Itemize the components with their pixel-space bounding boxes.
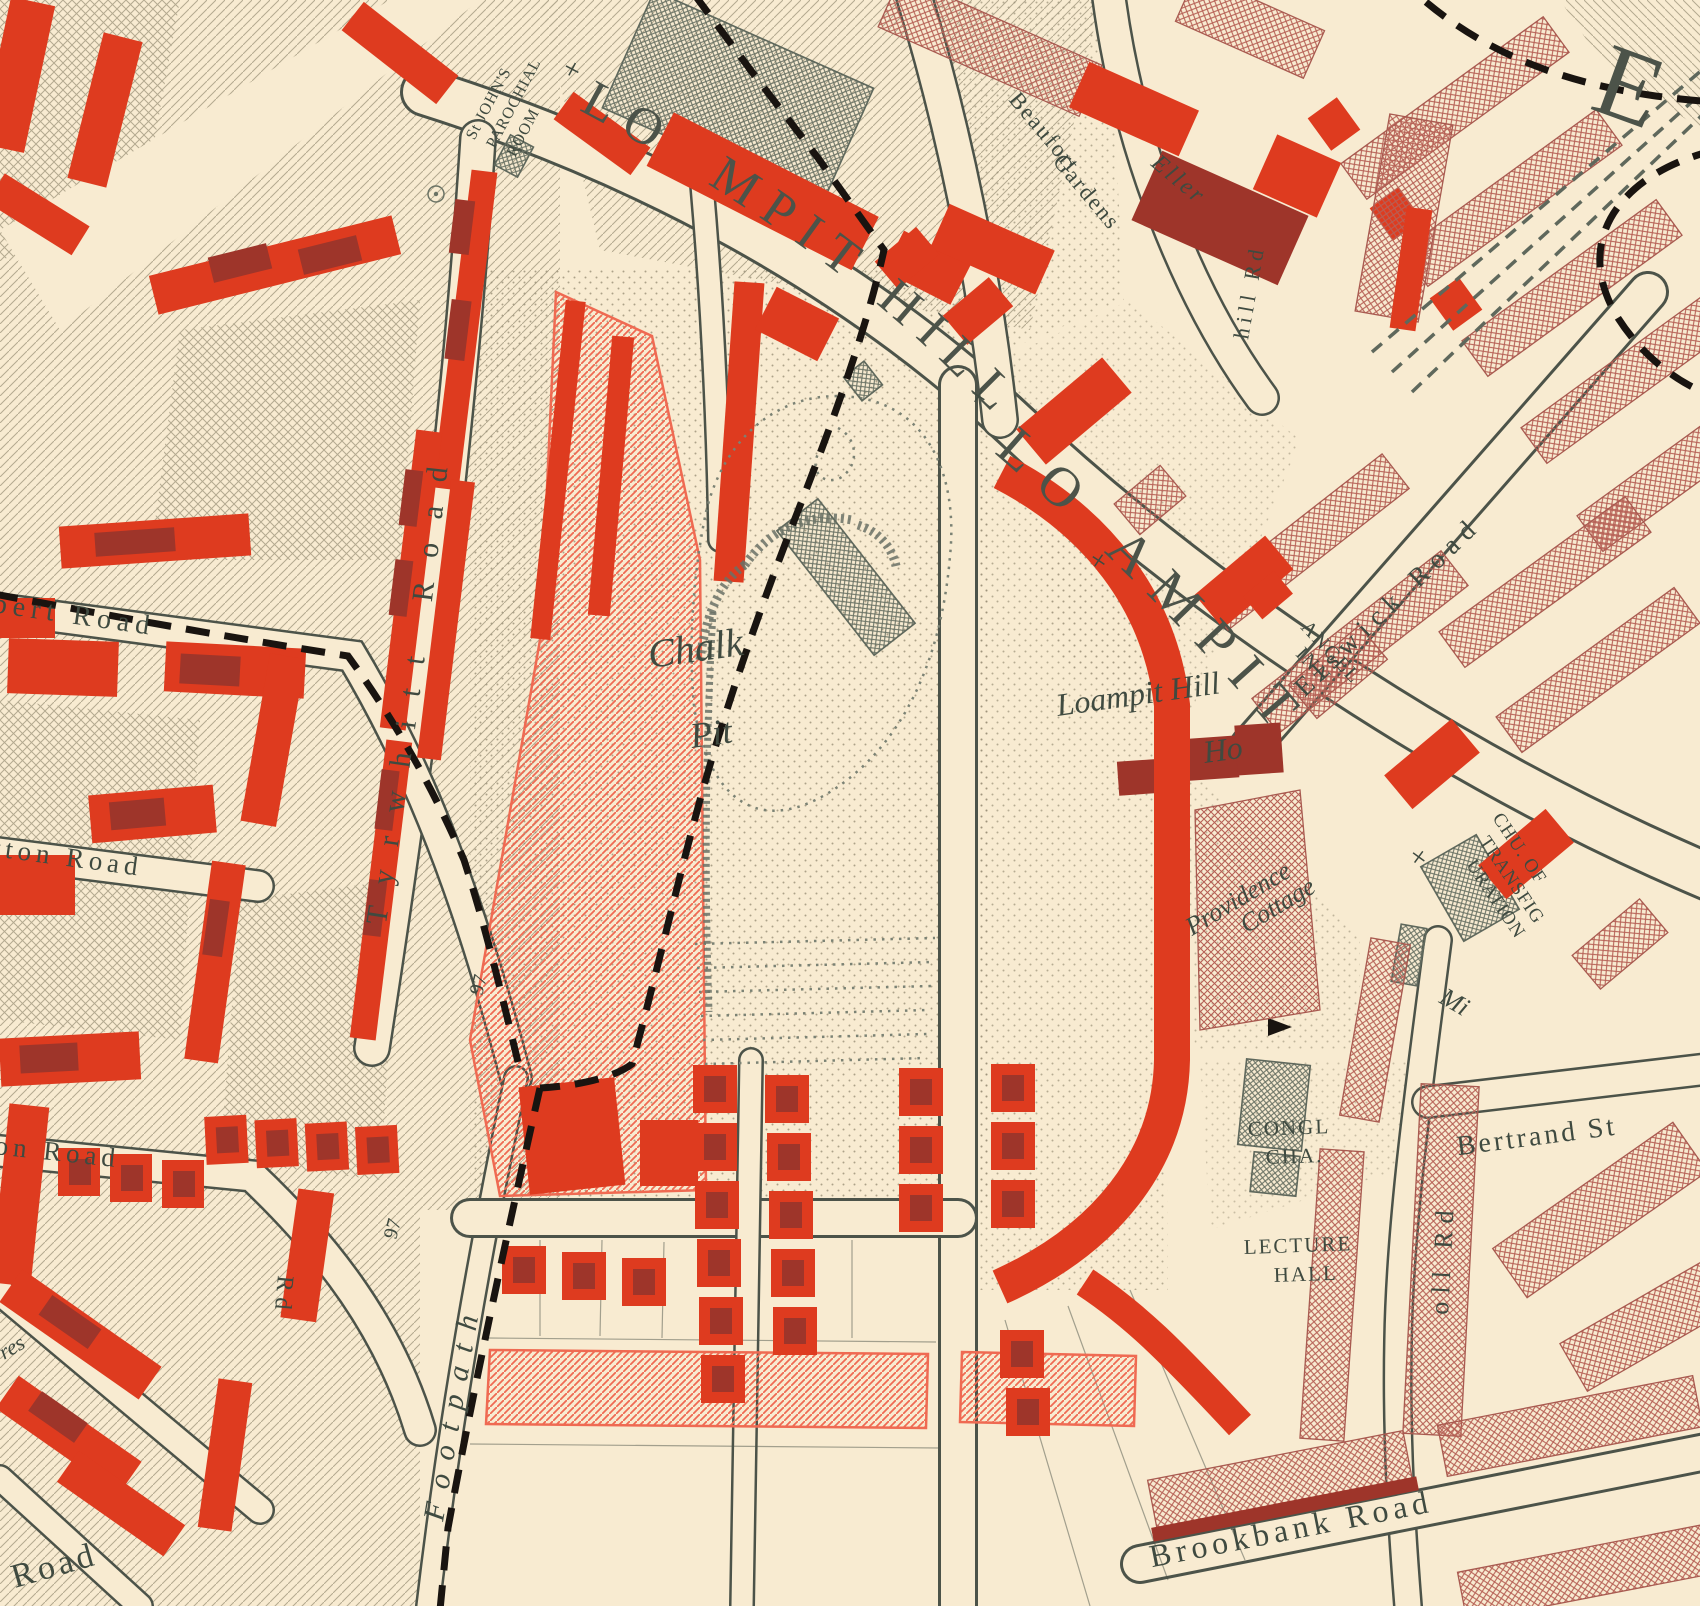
street-label-oll-rd-fragment: oll Rd bbox=[1425, 1202, 1460, 1316]
booth-style-poverty-map: LO MPIT HILL LO AMPIT + + + + Elswick Ro… bbox=[0, 0, 1700, 1606]
map-viewport: LO MPIT HILL LO AMPIT + + + + Elswick Ro… bbox=[0, 0, 1700, 1606]
svg-text:CHA.: CHA. bbox=[1265, 1143, 1323, 1169]
svg-text:LECTURE: LECTURE bbox=[1243, 1231, 1352, 1259]
street-label-rd-fragment: Rd bbox=[269, 1274, 298, 1316]
svg-text:CONGL: CONGL bbox=[1247, 1114, 1330, 1141]
street-label-bertrand-street: Bertrand St bbox=[1455, 1111, 1619, 1163]
svg-text:HALL: HALL bbox=[1273, 1261, 1338, 1287]
svg-text:Ho: Ho bbox=[1200, 729, 1245, 770]
svg-text:Pit: Pit bbox=[687, 710, 736, 756]
